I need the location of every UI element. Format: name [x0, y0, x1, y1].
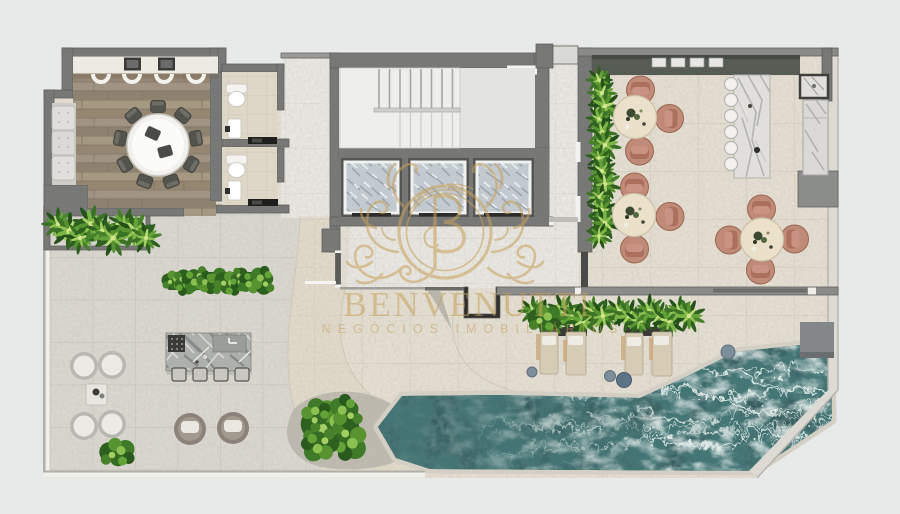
svg-text:BENVENUTTI: BENVENUTTI	[343, 285, 593, 324]
svg-text:NEGÓCIOS IMOBILIÁRIOS: NEGÓCIOS IMOBILIÁRIOS	[322, 321, 625, 336]
